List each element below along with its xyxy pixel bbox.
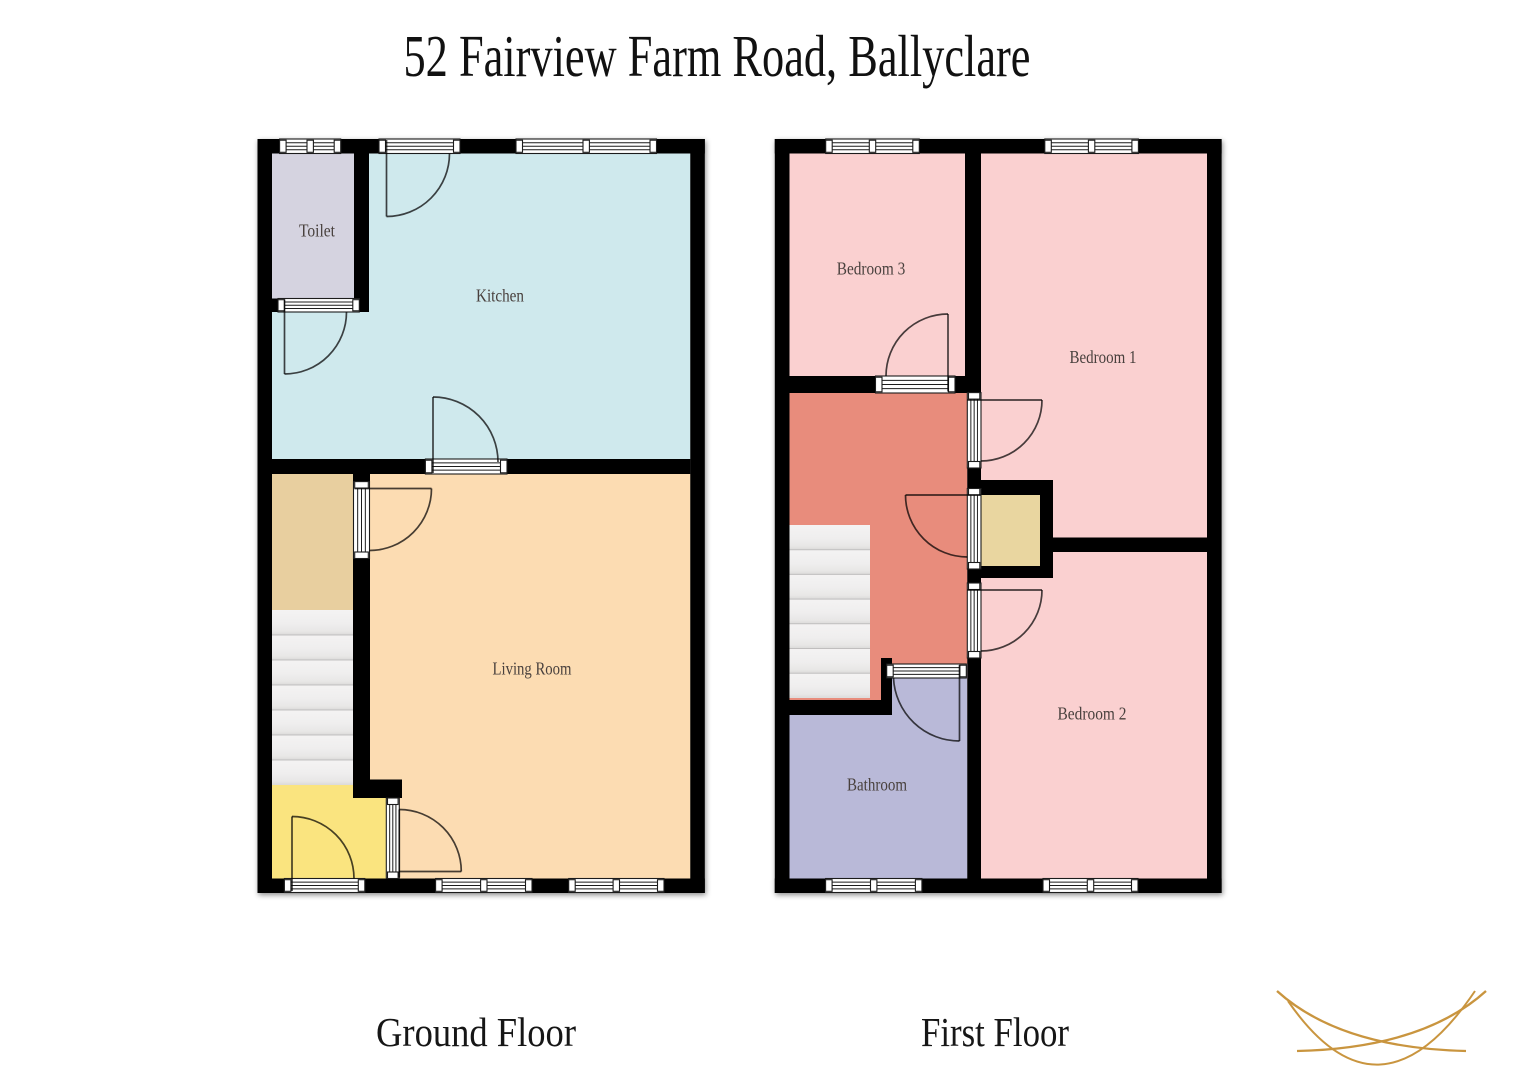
svg-text:Bathroom: Bathroom [847, 775, 907, 795]
svg-text:Toilet: Toilet [299, 221, 335, 241]
svg-text:First Floor: First Floor [921, 1009, 1069, 1055]
svg-text:Ground Floor: Ground Floor [376, 1009, 576, 1055]
svg-text:Kitchen: Kitchen [476, 286, 524, 306]
svg-text:Bedroom 2: Bedroom 2 [1058, 704, 1127, 724]
svg-text:52 Fairview Farm Road, Ballycl: 52 Fairview Farm Road, Ballyclare [404, 23, 1031, 89]
svg-text:Bedroom 1: Bedroom 1 [1070, 347, 1137, 367]
svg-text:Living Room: Living Room [493, 659, 572, 679]
svg-text:Bedroom 3: Bedroom 3 [837, 259, 906, 279]
